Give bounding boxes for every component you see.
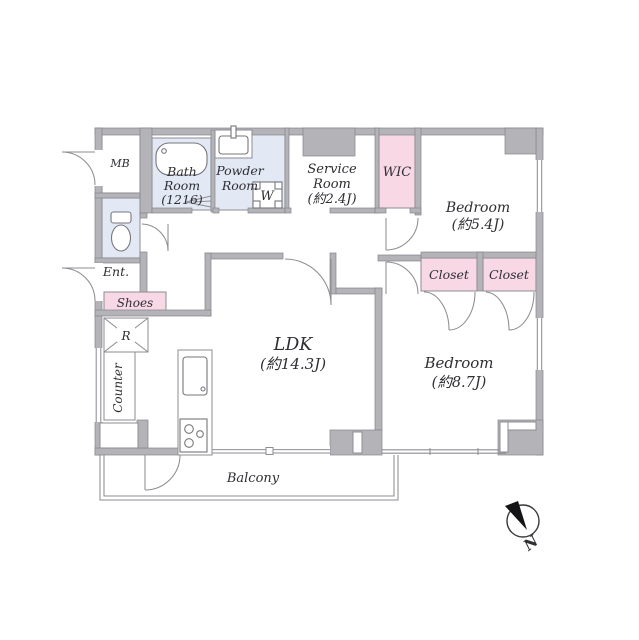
entrance-label: Ent. [102, 264, 129, 279]
service-label-2: Room [312, 177, 351, 192]
service-label-1: Service [307, 162, 357, 177]
bedroom-a-label-1: Bedroom [445, 200, 510, 216]
storage-box [100, 423, 138, 448]
compass: N [505, 501, 543, 555]
pillar-bedroom-a [505, 128, 536, 154]
balcony-label: Balcony [226, 471, 280, 486]
closet-b-label: Closet [489, 267, 530, 282]
counter-label: Counter [111, 362, 125, 413]
mb-door-opening [94, 150, 103, 186]
ldk-label-2: (約14.3J) [260, 355, 326, 373]
wic-label: WIC [383, 165, 411, 180]
bedroom-b-label-2: (約8.7J) [432, 374, 487, 391]
bath-label-3: (1216) [161, 192, 203, 207]
bath-label-1: Bath [166, 164, 197, 179]
pillar-service-room [303, 128, 355, 156]
bath-label-2: Room [163, 178, 200, 193]
toilet-icon [111, 212, 131, 251]
kitchen-island [178, 350, 212, 455]
bedroom-b-label-1: Bedroom [424, 354, 494, 372]
sink-icon [219, 136, 248, 154]
service-label-3: (約2.4J) [307, 192, 356, 207]
powder-label-1: Powder [215, 163, 265, 178]
powder-label-2: Room [221, 178, 258, 193]
fridge-label: R [120, 329, 130, 343]
bedroom-a-label-2: (約5.4J) [452, 217, 505, 233]
mb-label: MB [109, 157, 129, 170]
closet-a-label: Closet [429, 267, 470, 282]
floor-plan-page: N MB Bath Room (1216) Powder Room W Serv… [0, 0, 639, 640]
washer-label: W [260, 189, 275, 204]
entrance-door-opening [94, 263, 103, 301]
shoes-label: Shoes [117, 296, 153, 310]
ldk-label-1: LDK [273, 335, 314, 355]
floor-plan-drawing: N MB Bath Room (1216) Powder Room W Serv… [0, 0, 639, 640]
